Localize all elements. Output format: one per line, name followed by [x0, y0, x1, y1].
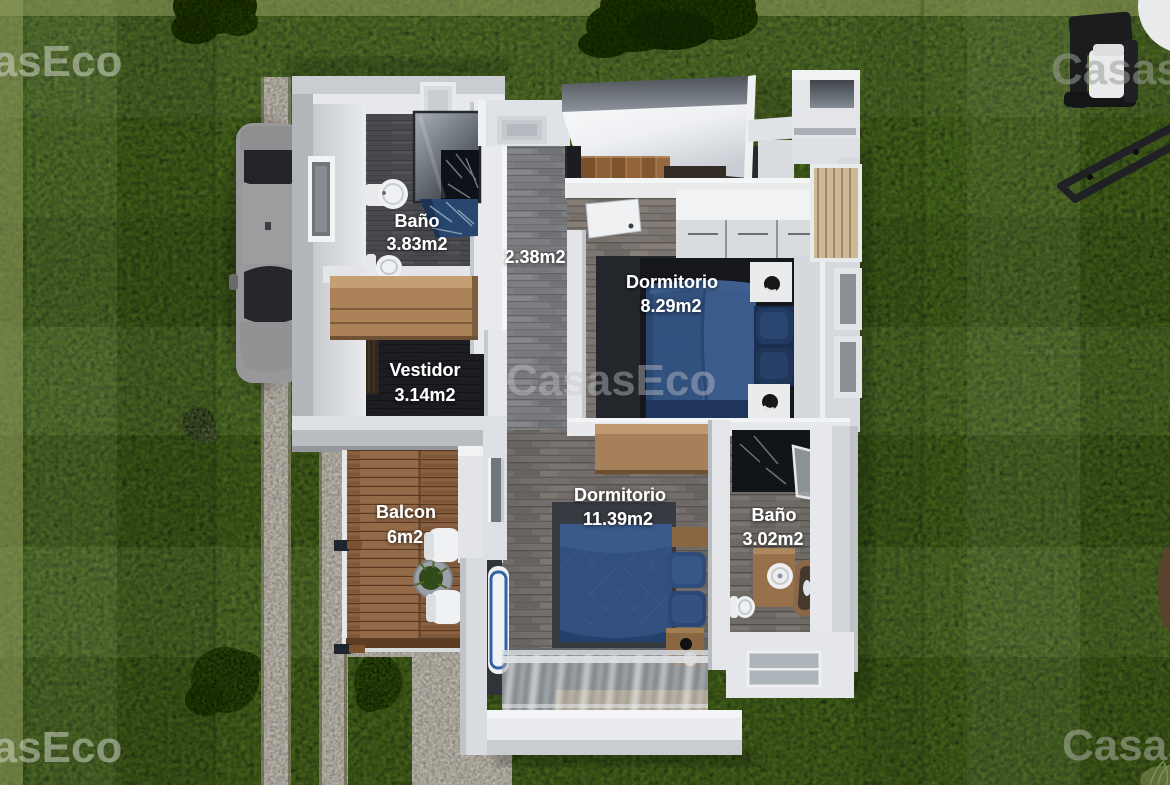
svg-text:CasasEco: CasasEco: [0, 723, 122, 772]
svg-text:8.29m2: 8.29m2: [640, 296, 701, 316]
svg-text:CasasEco: CasasEco: [1051, 45, 1170, 94]
svg-text:3.02m2: 3.02m2: [742, 529, 803, 549]
svg-text:Vestidor: Vestidor: [389, 360, 460, 380]
svg-text:Baño: Baño: [395, 211, 440, 231]
svg-text:3.14m2: 3.14m2: [394, 385, 455, 405]
svg-text:Dormitorio: Dormitorio: [626, 272, 718, 292]
svg-text:6m2: 6m2: [387, 527, 423, 547]
svg-text:11.39m2: 11.39m2: [583, 509, 653, 529]
svg-text:Balcon: Balcon: [376, 502, 436, 522]
svg-text:2.38m2: 2.38m2: [504, 247, 565, 267]
svg-text:3.83m2: 3.83m2: [386, 234, 447, 254]
svg-text:CasasEco: CasasEco: [1062, 721, 1170, 770]
svg-text:CasasEco: CasasEco: [506, 356, 716, 405]
svg-text:Baño: Baño: [752, 505, 797, 525]
svg-text:CasasEco: CasasEco: [0, 37, 122, 86]
svg-text:Dormitorio: Dormitorio: [574, 485, 666, 505]
